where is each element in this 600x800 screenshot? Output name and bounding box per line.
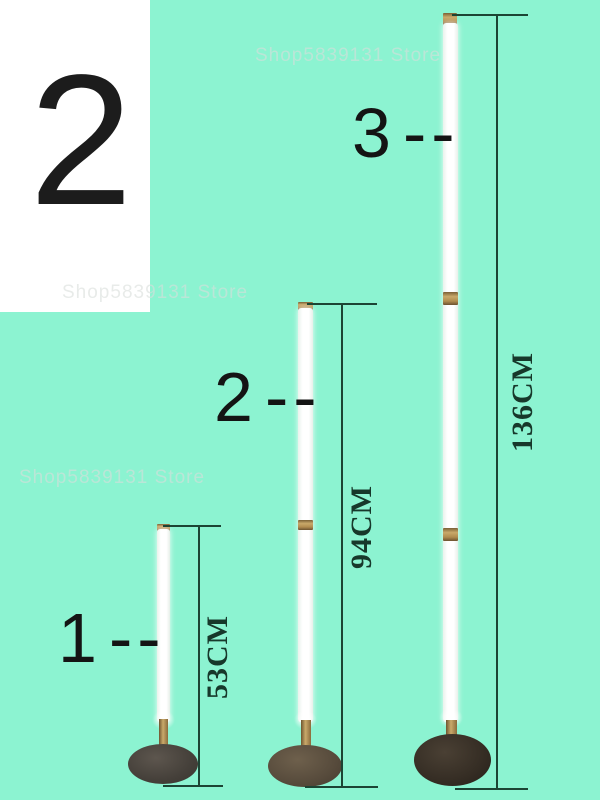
watermark: Shop5839131 Store bbox=[19, 467, 205, 489]
lamp3-number: 3 bbox=[352, 98, 391, 168]
lamp3-dim-tick-bottom bbox=[455, 788, 528, 790]
lamp1-dim-line bbox=[198, 525, 200, 787]
lamp1-dim-tick-top bbox=[163, 525, 221, 527]
lamp3-height-label: 136CM bbox=[506, 352, 540, 452]
watermark: Shop5839131 Store bbox=[255, 45, 441, 67]
lamp1-height-label: 53CM bbox=[201, 615, 235, 699]
lamp2-number: 2 bbox=[214, 362, 253, 432]
lamp3-number-label: 3-- bbox=[352, 98, 460, 168]
lamp1-dashes: -- bbox=[109, 603, 166, 673]
lamp2-base bbox=[268, 745, 342, 787]
lamp3-dashes: -- bbox=[403, 98, 460, 168]
lamp1-number: 1 bbox=[58, 603, 97, 673]
lamp1-base bbox=[128, 744, 198, 784]
lamp2-height-label: 94CM bbox=[345, 485, 379, 569]
watermark: Shop5839131 Store bbox=[62, 282, 248, 304]
lamp3-base bbox=[414, 734, 491, 786]
lamp1-number-label: 1-- bbox=[58, 603, 166, 673]
lamp2-dim-line bbox=[341, 303, 343, 788]
lamp3-dim-line bbox=[496, 14, 498, 790]
lamp2-joint bbox=[298, 520, 313, 530]
product-size-image: 2 Shop5839131 Store Shop5839131 Store Sh… bbox=[0, 0, 600, 800]
lamp2-dashes: -- bbox=[265, 362, 322, 432]
variant-number: 2 bbox=[26, 48, 136, 234]
lamp3-dim-tick-top bbox=[452, 14, 528, 16]
lamp3-joint-lower bbox=[443, 528, 458, 541]
lamp2-dim-tick-bottom bbox=[305, 786, 378, 788]
lamp3-joint-upper bbox=[443, 292, 458, 305]
lamp1-dim-tick-bottom bbox=[163, 785, 223, 787]
lamp2-number-label: 2-- bbox=[214, 362, 322, 432]
